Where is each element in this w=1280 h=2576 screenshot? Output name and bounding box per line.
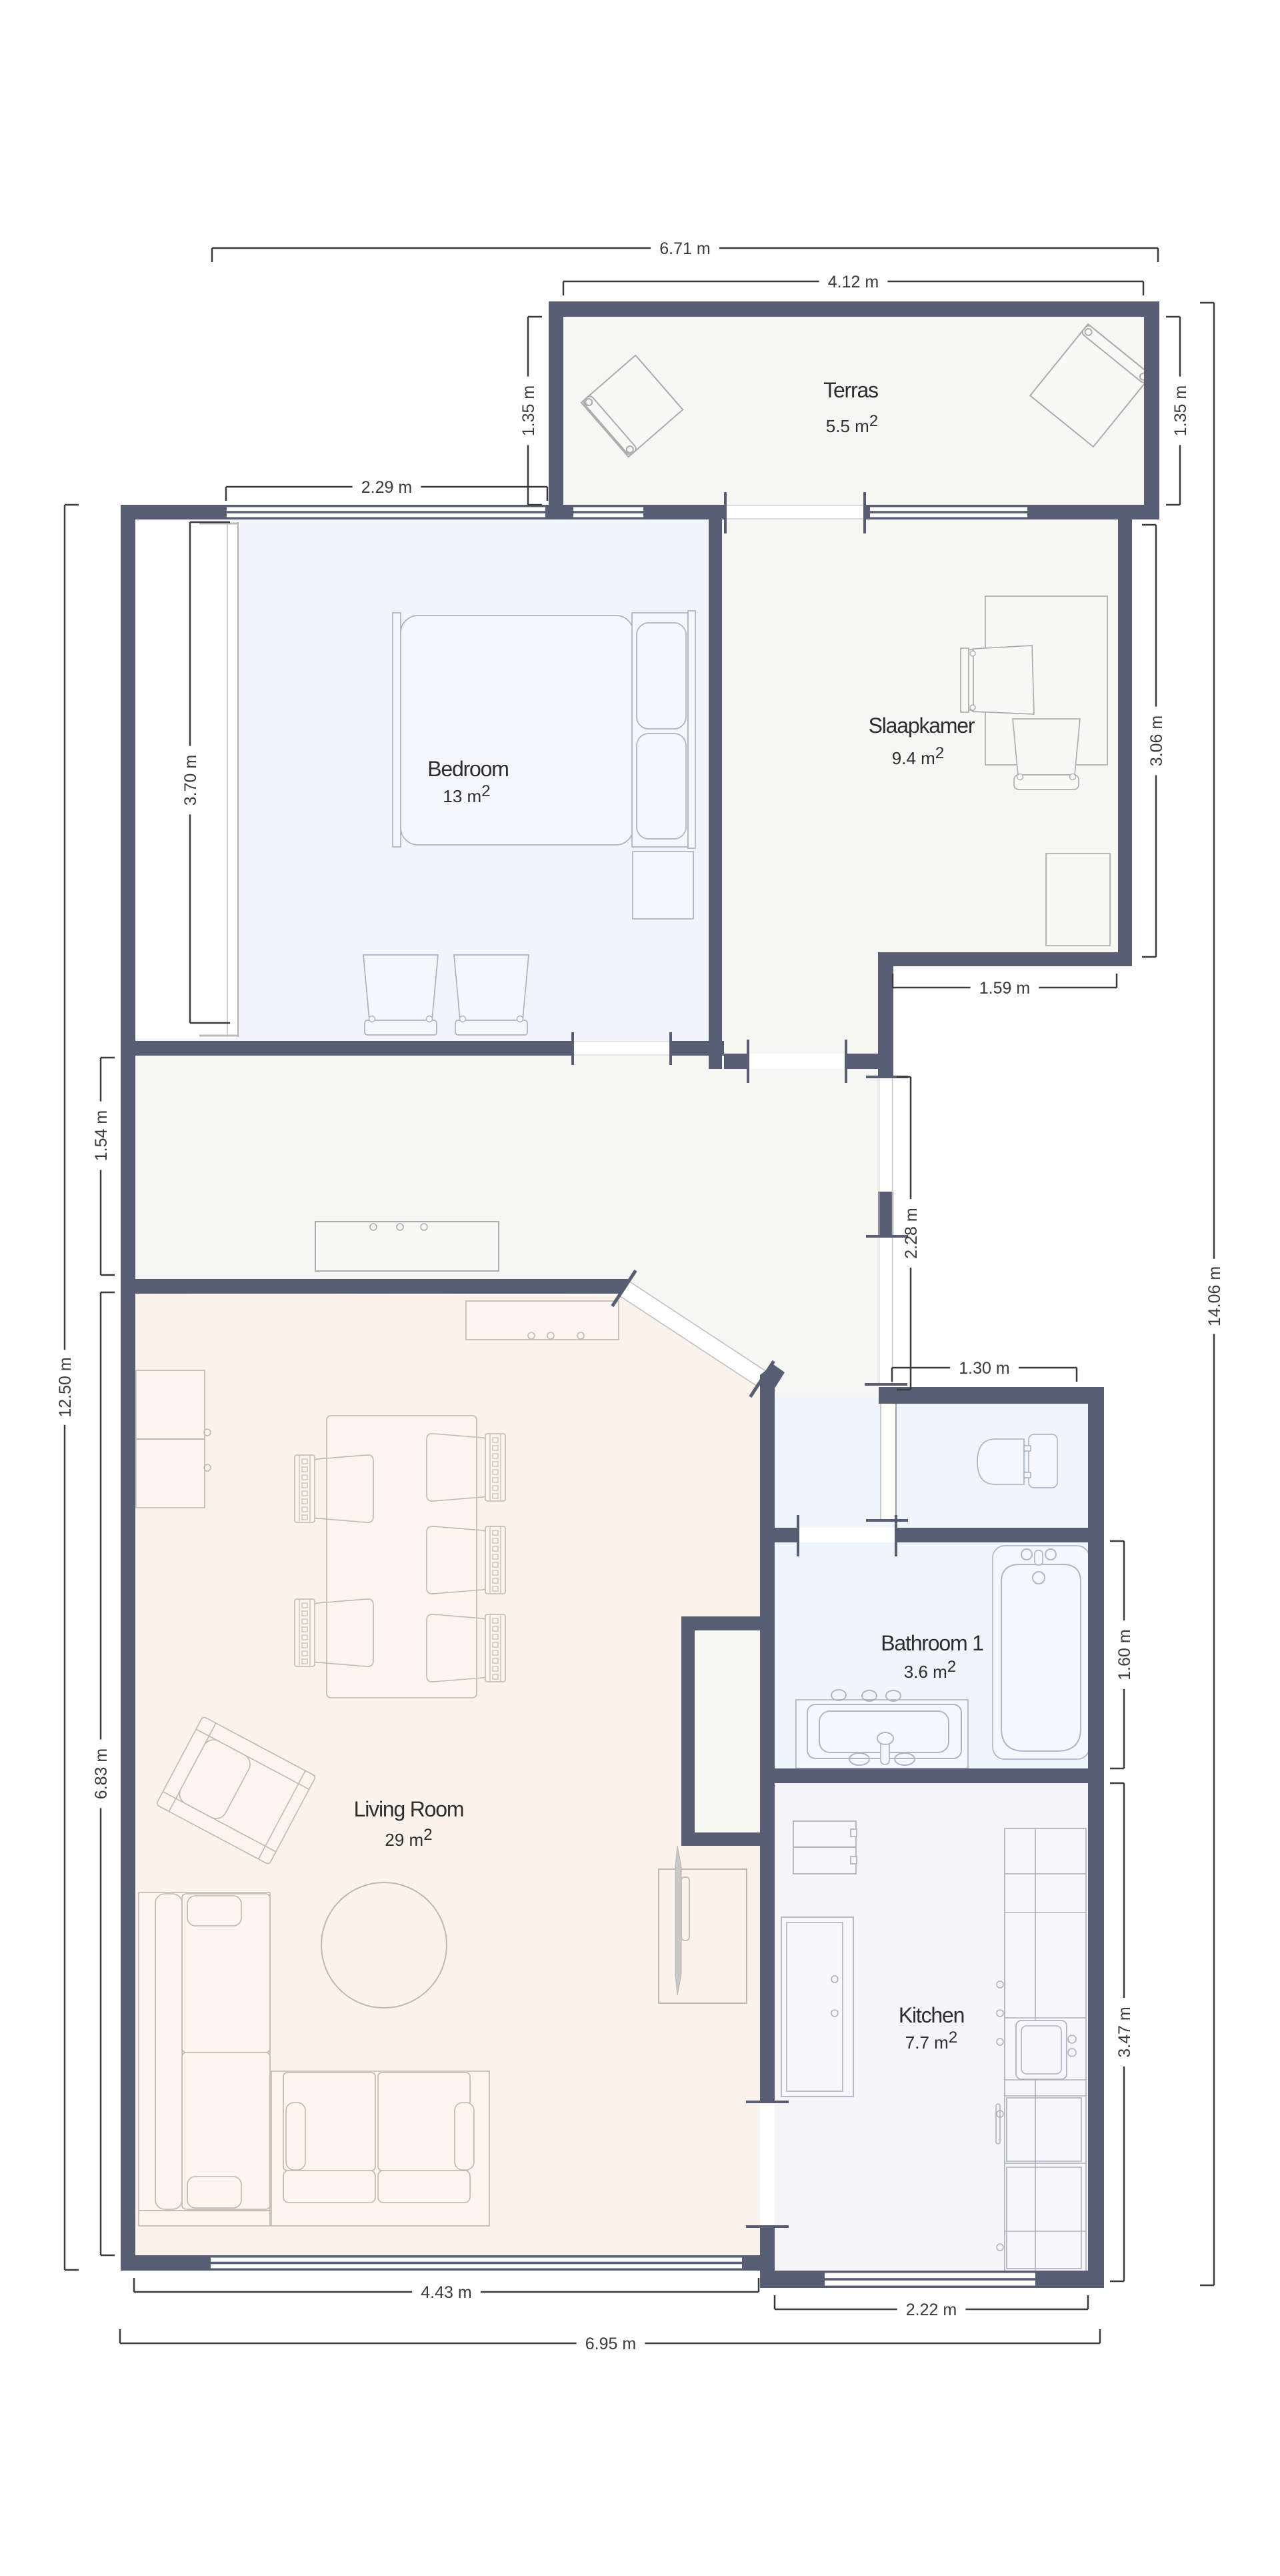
svg-text:1.30 m: 1.30 m: [959, 1359, 1009, 1378]
svg-text:14.06 m: 14.06 m: [1205, 1266, 1224, 1326]
svg-text:Living Room: Living Room: [354, 1797, 464, 1821]
svg-text:2.22 m: 2.22 m: [906, 2301, 957, 2319]
svg-text:1.35 m: 1.35 m: [519, 385, 538, 436]
svg-text:4.43 m: 4.43 m: [421, 2283, 471, 2302]
svg-text:12.50 m: 12.50 m: [56, 1357, 75, 1417]
svg-text:1.60 m: 1.60 m: [1115, 1629, 1134, 1680]
svg-text:1.35 m: 1.35 m: [1171, 385, 1190, 436]
svg-text:3.70 m: 3.70 m: [181, 755, 200, 806]
svg-text:3.06 m: 3.06 m: [1147, 716, 1166, 766]
svg-text:2.28 m: 2.28 m: [902, 1208, 921, 1258]
svg-text:Bathroom 1: Bathroom 1: [881, 1631, 983, 1655]
svg-text:Bedroom: Bedroom: [427, 757, 508, 781]
svg-text:6.71 m: 6.71 m: [659, 239, 710, 258]
svg-text:3.47 m: 3.47 m: [1115, 2007, 1134, 2057]
svg-text:6.83 m: 6.83 m: [92, 1748, 111, 1799]
svg-text:6.95 m: 6.95 m: [585, 2335, 636, 2353]
svg-text:2.29 m: 2.29 m: [361, 478, 412, 497]
svg-text:4.12 m: 4.12 m: [828, 273, 879, 291]
svg-text:Kitchen: Kitchen: [899, 2003, 964, 2027]
svg-text:Terras: Terras: [823, 378, 878, 402]
svg-text:1.59 m: 1.59 m: [979, 979, 1030, 998]
svg-text:Slaapkamer: Slaapkamer: [869, 714, 975, 738]
svg-text:1.54 m: 1.54 m: [92, 1110, 111, 1161]
